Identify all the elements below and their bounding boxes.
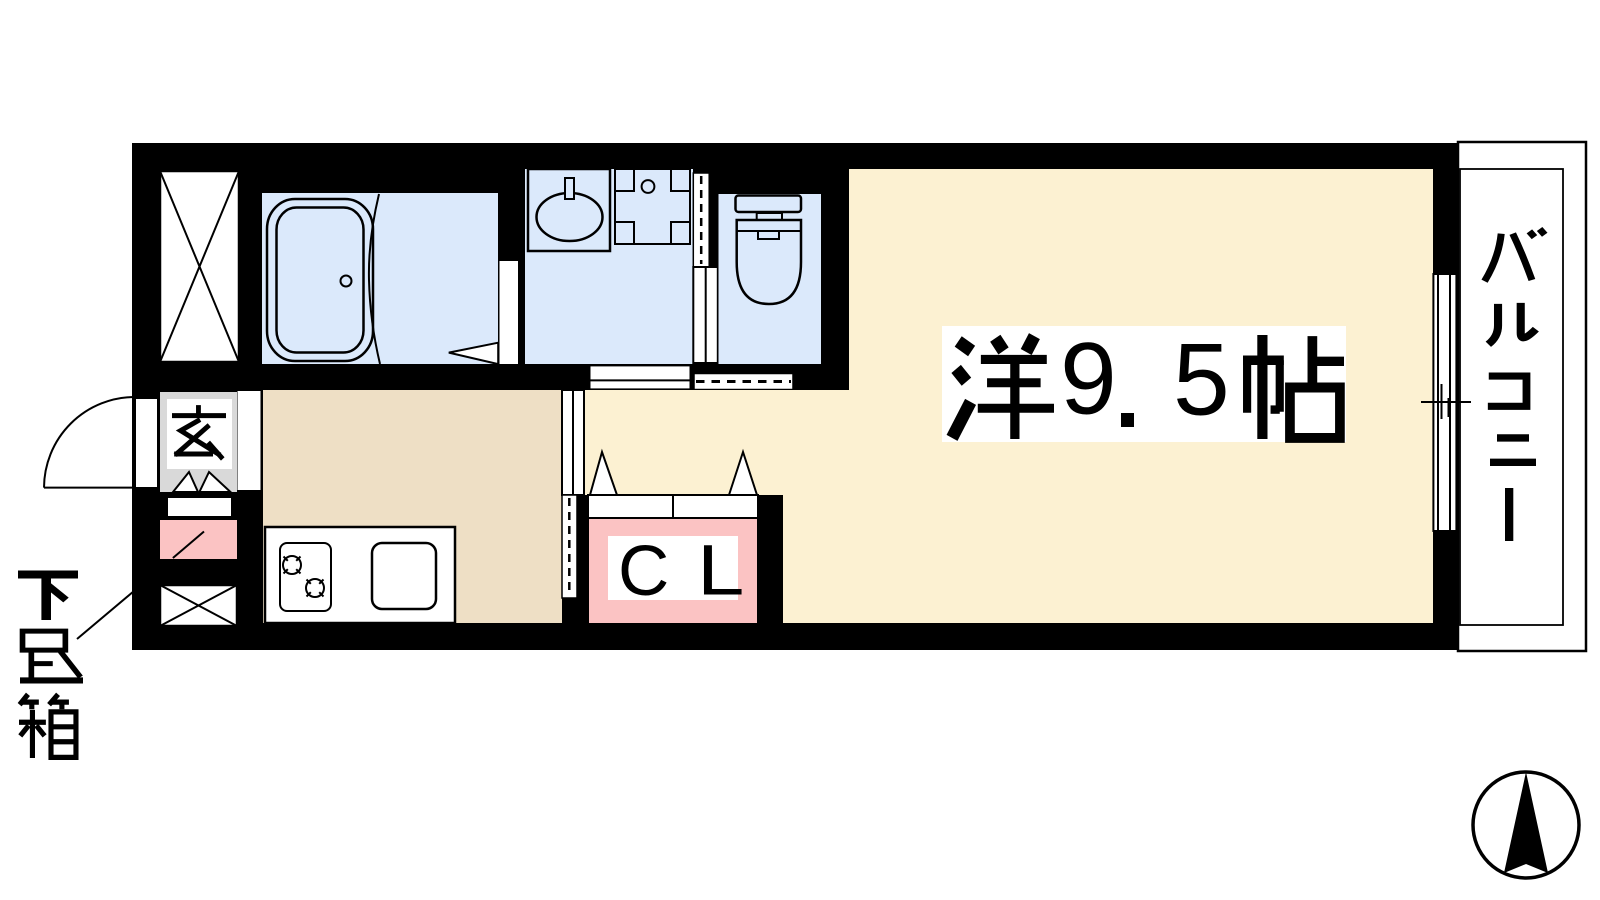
svg-text:9: 9	[1060, 322, 1117, 436]
svg-text:5: 5	[1173, 323, 1230, 437]
svg-text:C: C	[618, 532, 669, 611]
svg-text:L: L	[697, 530, 744, 610]
